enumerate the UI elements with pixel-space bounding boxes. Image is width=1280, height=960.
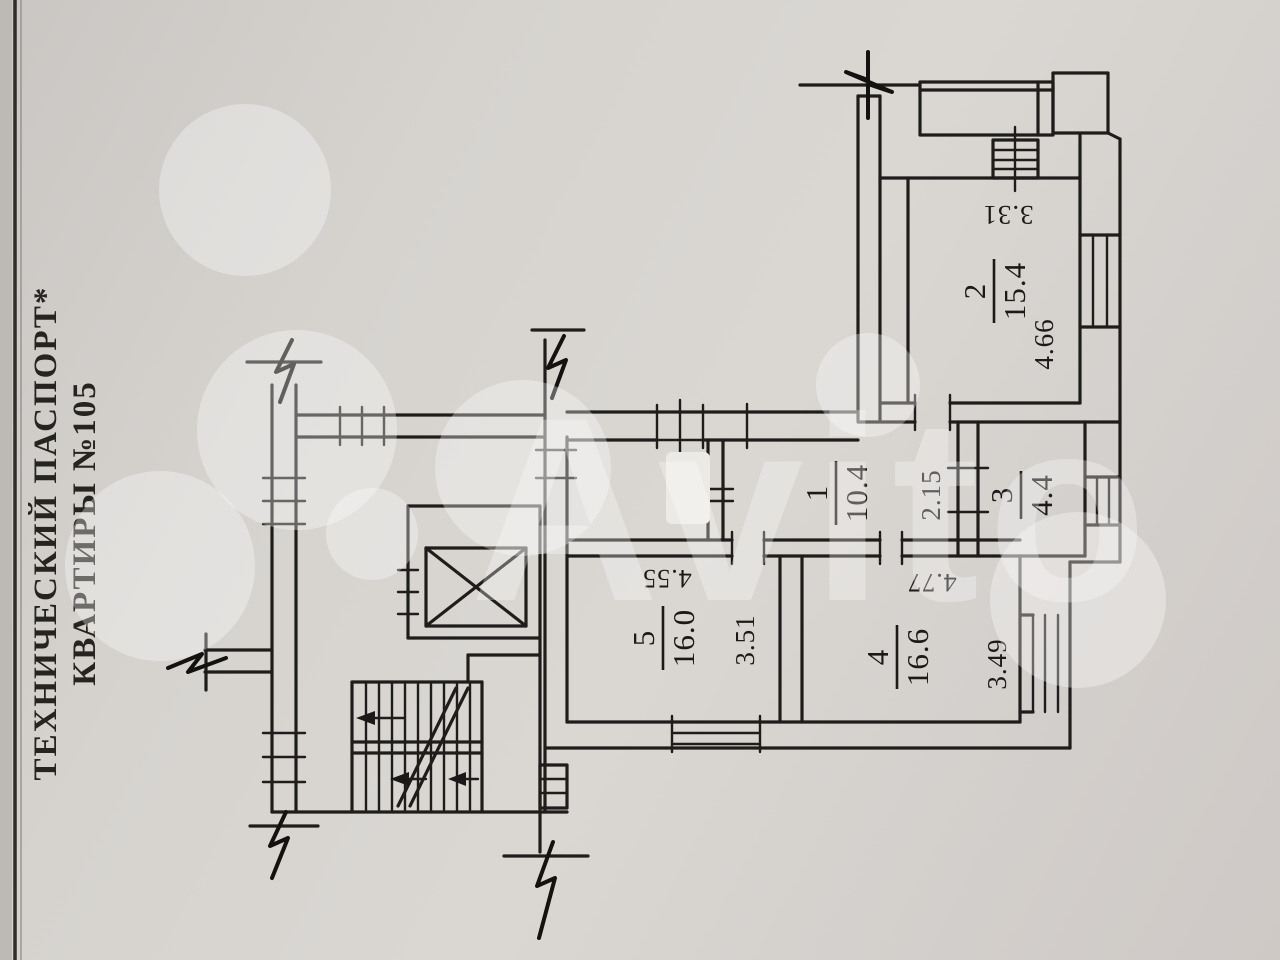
staircase xyxy=(352,682,482,812)
break-mark-bottom-right xyxy=(504,842,588,938)
photographed-floor-plan-document: ТЕХНИЧЕСКИЙ ПАСПОРТ* КВАРТИРЫ №105 xyxy=(0,0,1280,960)
room-2-label: 2 15.4 xyxy=(957,259,1032,323)
roof-box xyxy=(1053,73,1108,133)
watermark-circle xyxy=(65,471,255,661)
break-mark-bottom-left xyxy=(250,812,318,878)
room-2-dim-side: 4.66 xyxy=(1029,318,1059,369)
watermark-text: Avito xyxy=(470,363,1155,656)
watermark-circle xyxy=(159,104,331,276)
room-2-window xyxy=(1080,235,1120,327)
room-2-dim-top: 3.31 xyxy=(982,200,1033,230)
balcony xyxy=(920,82,1053,135)
floor-plan: ТЕХНИЧЕСКИЙ ПАСПОРТ* КВАРТИРЫ №105 xyxy=(0,0,1280,960)
page-edge xyxy=(0,0,21,960)
svg-text:15.4: 15.4 xyxy=(997,262,1032,320)
watermark-circle xyxy=(326,488,418,580)
watermark: Avito xyxy=(65,104,1166,688)
svg-text:2: 2 xyxy=(957,283,992,300)
left-wall-window-lower xyxy=(263,733,305,782)
document-title-line1: ТЕХНИЧЕСКИЙ ПАСПОРТ* xyxy=(27,286,64,781)
